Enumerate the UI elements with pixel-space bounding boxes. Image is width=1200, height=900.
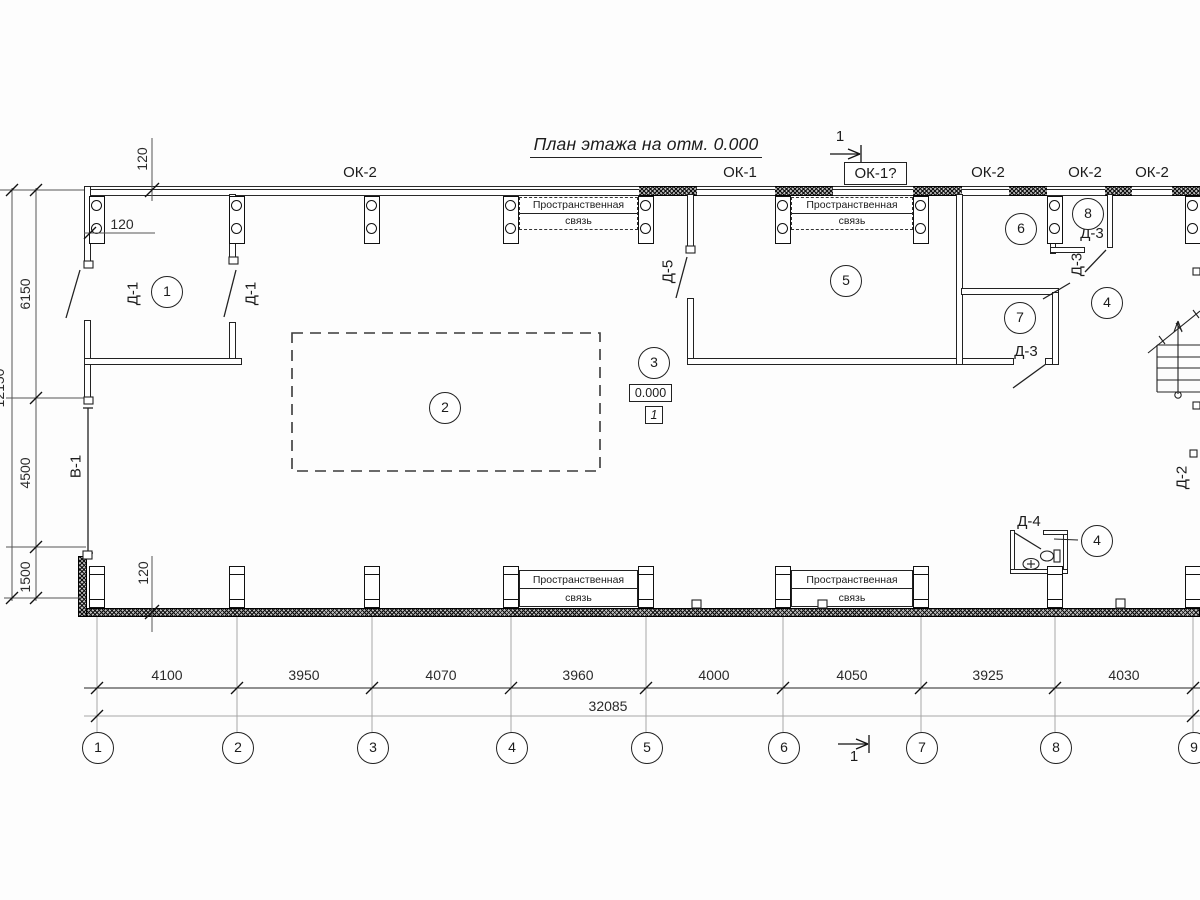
axis-bubble-2: 2 bbox=[222, 732, 254, 764]
wall-stub-right bbox=[1193, 268, 1200, 275]
window-label-ok2: ОК-2 bbox=[334, 164, 386, 181]
dim-text-left: 6150 bbox=[17, 274, 33, 314]
wall-room5-left-a bbox=[687, 194, 694, 252]
dim-tick bbox=[640, 682, 652, 694]
axis-bubble-1: 1 bbox=[82, 732, 114, 764]
column-bottom-axis8 bbox=[1047, 566, 1063, 608]
room-circle-6: 6 bbox=[1005, 213, 1037, 245]
brace-label-line1: Пространственная bbox=[520, 199, 637, 211]
column-top-axis8 bbox=[1047, 196, 1063, 244]
brace-label-line1: Пространственная bbox=[520, 574, 637, 586]
elevation-note: 1 bbox=[645, 406, 663, 424]
column-top-axis2 bbox=[229, 196, 245, 244]
dim-tick bbox=[777, 682, 789, 694]
column-circle bbox=[231, 200, 242, 211]
dim-tick bbox=[6, 184, 18, 196]
toilet-tank-icon bbox=[1054, 550, 1060, 562]
wall-pier bbox=[775, 186, 833, 196]
column-bottom-axis2 bbox=[229, 566, 245, 608]
dim-text-offset: 120 bbox=[102, 216, 142, 232]
sink-icon bbox=[1023, 559, 1039, 570]
column-circle bbox=[505, 223, 516, 234]
dim-text-left-total: 12150 bbox=[0, 364, 7, 412]
dim-text: 4100 bbox=[132, 667, 202, 683]
drawing-title: План этажа на отм. 0.000 bbox=[530, 134, 762, 158]
column-plate bbox=[90, 574, 104, 575]
column-circle bbox=[1187, 200, 1198, 211]
door-leaf-d5 bbox=[676, 257, 687, 298]
room-circle-3: 3 bbox=[638, 347, 670, 379]
wall-pier bbox=[1009, 186, 1047, 196]
column-bottom-axis6 bbox=[775, 566, 791, 608]
column-plate bbox=[639, 574, 653, 575]
brace-label-line2: связь bbox=[792, 215, 912, 227]
dim-tick bbox=[91, 682, 103, 694]
dim-tick bbox=[1187, 710, 1199, 722]
wall-stub-right bbox=[1193, 402, 1200, 409]
axis-bubble-5: 5 bbox=[631, 732, 663, 764]
window-band-ok2 bbox=[1047, 186, 1105, 196]
door-label-d3: Д-3 bbox=[1069, 247, 1086, 283]
column-circle bbox=[640, 223, 651, 234]
stair-break-tick bbox=[1176, 323, 1182, 331]
stair-break-line bbox=[1148, 311, 1200, 353]
dim-tick bbox=[1187, 682, 1199, 694]
wall-room1-bottom bbox=[84, 358, 242, 365]
spatial-brace-top-2: Пространственная связь bbox=[791, 197, 913, 230]
wall-wc-top bbox=[1043, 530, 1068, 535]
column-circle bbox=[777, 200, 788, 211]
section-label-top: 1 bbox=[832, 128, 848, 145]
column-plate bbox=[914, 574, 928, 575]
door-label-d5: Д-5 bbox=[660, 254, 677, 290]
column-plate bbox=[230, 599, 244, 600]
column-circle bbox=[1049, 223, 1060, 234]
column-plate bbox=[914, 599, 928, 600]
dim-tick bbox=[915, 682, 927, 694]
section-arrowhead bbox=[848, 149, 860, 154]
column-bottom-axis1 bbox=[89, 566, 105, 608]
column-circle bbox=[231, 223, 242, 234]
door-label-d1: Д-1 bbox=[243, 276, 260, 312]
wall-wc-left bbox=[1010, 530, 1015, 574]
column-top-axis6 bbox=[775, 196, 791, 244]
brace-mid-line bbox=[520, 588, 637, 589]
exterior-wall-bottom bbox=[82, 608, 1200, 617]
column-bottom-axis7 bbox=[913, 566, 929, 608]
room-circle-8: 8 bbox=[1072, 198, 1104, 230]
window-band-ok2 bbox=[962, 186, 1009, 196]
column-circle bbox=[915, 223, 926, 234]
wall-stub bbox=[692, 600, 701, 608]
axis-bubble-3: 3 bbox=[357, 732, 389, 764]
column-plate bbox=[230, 574, 244, 575]
dim-text-left: 4500 bbox=[17, 453, 33, 493]
door-leaf-d1-right bbox=[224, 270, 236, 317]
wall-pier bbox=[1172, 186, 1200, 196]
window-label-ok2: ОК-2 bbox=[1126, 164, 1178, 181]
dim-tick bbox=[231, 682, 243, 694]
column-bottom-axis5 bbox=[638, 566, 654, 608]
wall-stub-right bbox=[1190, 450, 1197, 457]
brace-label-line2: связь bbox=[520, 592, 637, 604]
window-label-ok2: ОК-2 bbox=[962, 164, 1014, 181]
wall-stub bbox=[1116, 599, 1125, 608]
column-circle bbox=[366, 200, 377, 211]
room-circle-4: 4 bbox=[1091, 287, 1123, 319]
column-plate bbox=[639, 599, 653, 600]
wall-room5-right bbox=[956, 194, 963, 365]
window-label-ok1: ОК-1 bbox=[714, 164, 766, 181]
column-top-axis7 bbox=[913, 196, 929, 244]
column-top-axis3 bbox=[364, 196, 380, 244]
column-circle bbox=[915, 200, 926, 211]
dim-text: 4050 bbox=[817, 667, 887, 683]
section-arrowhead bbox=[848, 154, 860, 159]
axis-bubble-4: 4 bbox=[496, 732, 528, 764]
room-circle-4-wc: 4 bbox=[1081, 525, 1113, 557]
dim-text: 3925 bbox=[953, 667, 1023, 683]
opening-label-v1: В-1 bbox=[68, 449, 85, 485]
dim-tick bbox=[30, 184, 42, 196]
door-leaf-d3-room7 bbox=[1013, 364, 1046, 388]
stair-arrow-origin bbox=[1175, 392, 1181, 398]
dim-text: 3950 bbox=[269, 667, 339, 683]
dim-text: 4000 bbox=[679, 667, 749, 683]
room-circle-1: 1 bbox=[151, 276, 183, 308]
column-plate bbox=[365, 574, 379, 575]
toilet-icon bbox=[1041, 551, 1054, 561]
window-band-ok2-long bbox=[84, 186, 639, 196]
dim-text-offset: 120 bbox=[135, 555, 151, 591]
brace-mid-line bbox=[792, 588, 912, 589]
exterior-wall-left-lower bbox=[78, 556, 87, 617]
dim-tick bbox=[366, 682, 378, 694]
axis-bubble-9: 9 bbox=[1178, 732, 1200, 764]
door-label-d3: Д-3 bbox=[1008, 343, 1044, 360]
dim-tick bbox=[30, 541, 42, 553]
brace-label-line1: Пространственная bbox=[792, 199, 912, 211]
wall-wc-right bbox=[1063, 530, 1068, 574]
spatial-brace-top-1: Пространственная связь bbox=[519, 197, 638, 230]
column-circle bbox=[1049, 200, 1060, 211]
dim-text: 4030 bbox=[1089, 667, 1159, 683]
window-label-ok1q-boxed: ОК-1? bbox=[844, 162, 907, 185]
brace-label-line1: Пространственная bbox=[792, 574, 912, 586]
column-plate bbox=[1186, 574, 1200, 575]
axis-bubble-8: 8 bbox=[1040, 732, 1072, 764]
column-plate bbox=[776, 599, 790, 600]
spatial-brace-bottom-1: Пространственная связь bbox=[519, 570, 638, 607]
door-leaf-d1-left bbox=[66, 270, 80, 318]
column-circle bbox=[91, 200, 102, 211]
column-circle bbox=[505, 200, 516, 211]
dim-tick bbox=[505, 682, 517, 694]
room-circle-5: 5 bbox=[830, 265, 862, 297]
wall-room7-top bbox=[961, 288, 1059, 295]
elevation-value: 0.000 bbox=[629, 384, 672, 402]
dim-tick bbox=[1049, 682, 1061, 694]
brace-mid-line bbox=[520, 213, 637, 214]
wall-pier bbox=[913, 186, 962, 196]
wall-room7-right bbox=[1052, 292, 1059, 365]
stair-arrowhead bbox=[1178, 321, 1182, 332]
column-plate bbox=[1186, 599, 1200, 600]
column-plate bbox=[1048, 574, 1062, 575]
column-bottom-axis3 bbox=[364, 566, 380, 608]
axis-bubble-7: 7 bbox=[906, 732, 938, 764]
column-plate bbox=[1048, 599, 1062, 600]
door-label-d4: Д-4 bbox=[1011, 513, 1047, 530]
column-plate bbox=[504, 574, 518, 575]
section-arrowhead bbox=[856, 739, 868, 744]
column-top-axis5 bbox=[638, 196, 654, 244]
floor-plan-canvas: Пространственная связь Пространственная … bbox=[0, 0, 1200, 900]
dim-text-offset: 120 bbox=[134, 141, 150, 177]
dim-tick bbox=[30, 392, 42, 404]
axis-bubble-6: 6 bbox=[768, 732, 800, 764]
door-label-d1: Д-1 bbox=[125, 276, 142, 312]
column-circle bbox=[1187, 223, 1198, 234]
stair-arrowhead bbox=[1174, 321, 1178, 332]
room-circle-7: 7 bbox=[1004, 302, 1036, 334]
room-circle-2: 2 bbox=[429, 392, 461, 424]
stair-break-tick bbox=[1193, 310, 1199, 318]
column-bottom-axis4 bbox=[503, 566, 519, 608]
brace-mid-line bbox=[792, 213, 912, 214]
door-leaf-d4 bbox=[1015, 533, 1041, 549]
stair-break-tick bbox=[1159, 336, 1165, 344]
window-band-ok2 bbox=[1132, 186, 1172, 196]
column-plate bbox=[504, 599, 518, 600]
column-bottom-axis9 bbox=[1185, 566, 1200, 608]
column-circle bbox=[91, 223, 102, 234]
dim-text: 3960 bbox=[543, 667, 613, 683]
spatial-brace-bottom-2: Пространственная связь bbox=[791, 570, 913, 607]
column-circle bbox=[777, 223, 788, 234]
dim-text-total: 32085 bbox=[568, 698, 648, 714]
wall-room5-left-b bbox=[687, 298, 694, 364]
wall-room5-bottom bbox=[687, 358, 1014, 365]
section-label-bottom: 1 bbox=[846, 748, 862, 765]
column-plate bbox=[90, 599, 104, 600]
window-band-ok1q bbox=[833, 186, 913, 196]
brace-label-line2: связь bbox=[520, 215, 637, 227]
column-plate bbox=[776, 574, 790, 575]
column-circle bbox=[640, 200, 651, 211]
dim-tick bbox=[91, 710, 103, 722]
window-label-ok2: ОК-2 bbox=[1059, 164, 1111, 181]
column-circle bbox=[366, 223, 377, 234]
dim-text: 4070 bbox=[406, 667, 476, 683]
dim-text-left: 1500 bbox=[17, 557, 33, 597]
column-top-axis9 bbox=[1185, 196, 1200, 244]
column-plate bbox=[365, 599, 379, 600]
door-label-d2: Д-2 bbox=[1174, 460, 1191, 496]
column-top-axis4 bbox=[503, 196, 519, 244]
door-leaf-d3-room8 bbox=[1085, 250, 1106, 272]
brace-label-line2: связь bbox=[792, 592, 912, 604]
window-band-ok1 bbox=[697, 186, 775, 196]
